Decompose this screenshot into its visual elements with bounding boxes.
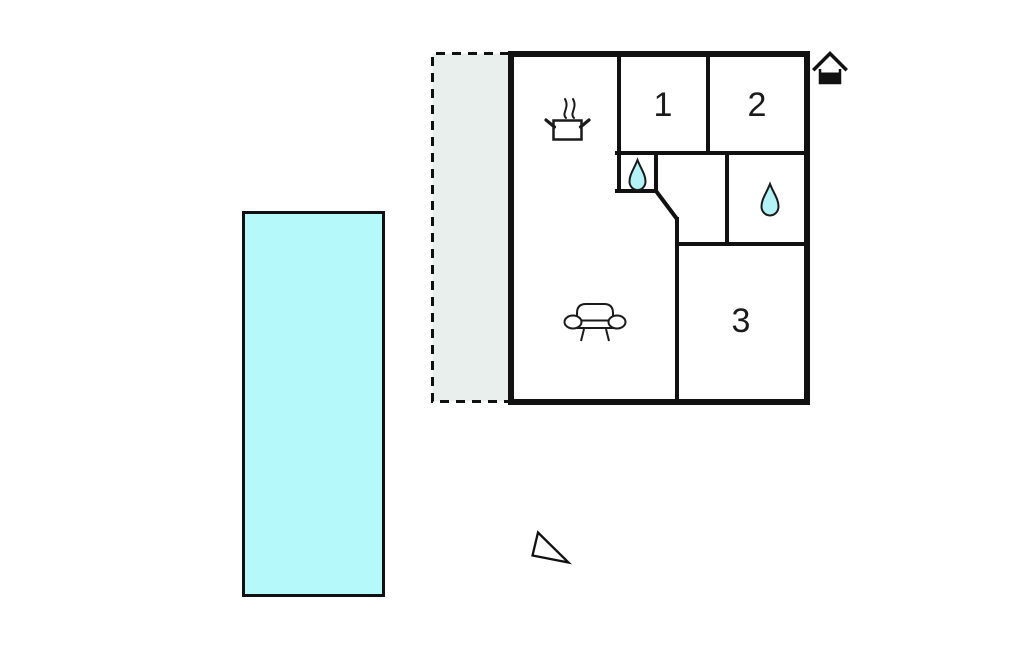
orientation-triangle	[533, 533, 569, 563]
swimming-pool	[244, 213, 384, 596]
house-icon	[815, 54, 846, 84]
room-2-label: 2	[727, 85, 787, 125]
house-body-lower	[819, 73, 841, 84]
floor-plan-canvas: 1 2 3	[0, 0, 1024, 652]
room-1-label: 1	[633, 85, 693, 125]
north-arrow-icon	[533, 533, 569, 563]
sofa-armrest-right	[609, 316, 626, 329]
pool-water	[244, 213, 384, 596]
pot-body	[554, 121, 582, 140]
floor-plan-drawing	[0, 0, 1024, 652]
sofa-armrest-left	[565, 316, 582, 329]
terrace-fill	[433, 54, 509, 402]
house-roof	[815, 54, 846, 70]
terrace	[433, 54, 510, 402]
room-3-label: 3	[711, 301, 771, 341]
